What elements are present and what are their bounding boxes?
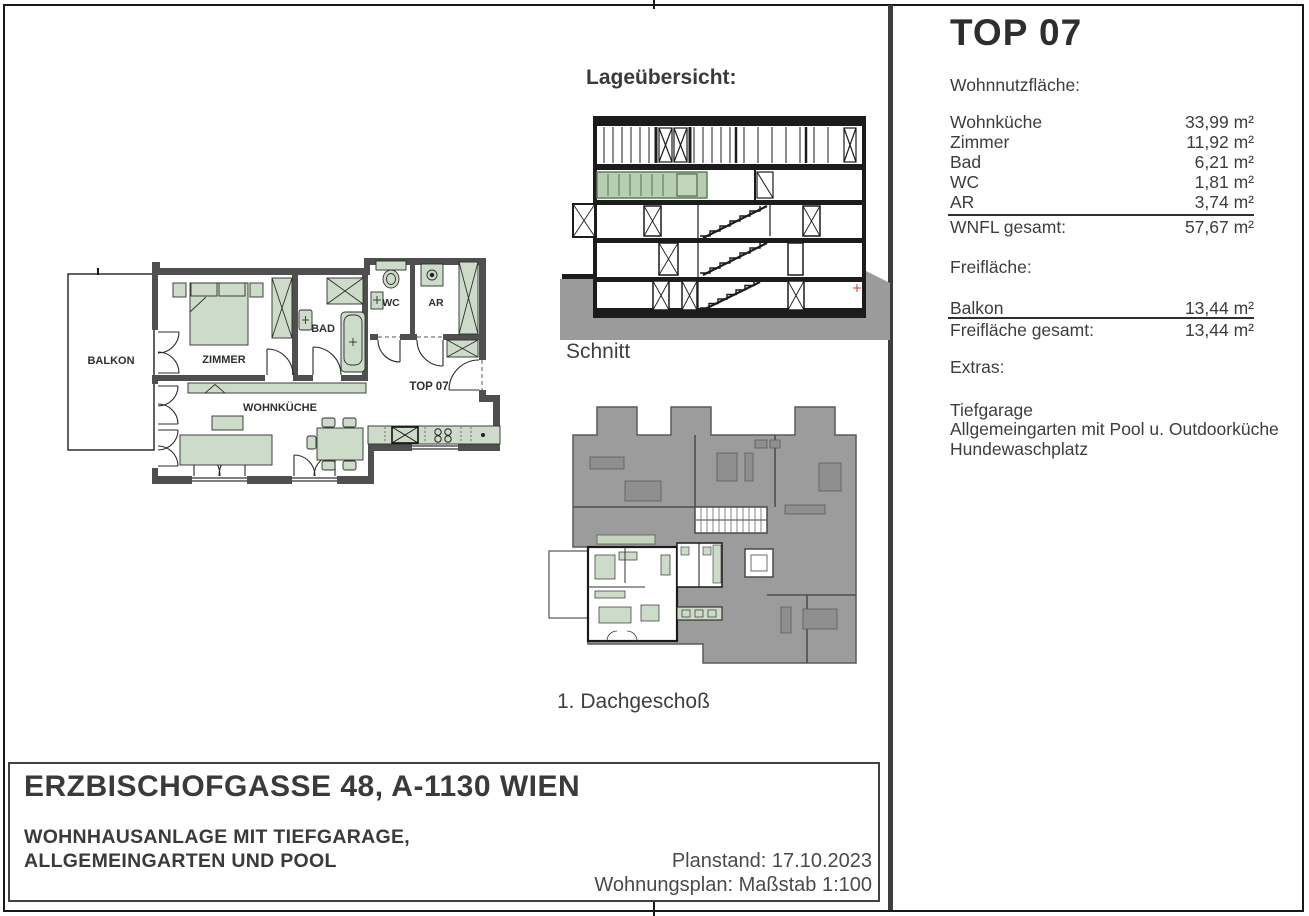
table-row: Zimmer 11,92 m² — [950, 132, 1254, 152]
elevator — [745, 549, 773, 577]
bad-label: BAD — [311, 323, 335, 335]
free-area-heading: Freifläche: — [950, 257, 1032, 278]
living-area-table: Wohnküche 33,99 m² Zimmer 11,92 m² Bad 6… — [950, 112, 1254, 212]
plan-type-scale: Wohnungsplan: Maßstab 1:100 — [594, 874, 872, 897]
balkon-label: BALKON — [87, 355, 134, 367]
bottom-center-tick — [653, 902, 655, 916]
total-label: WNFL gesamt: — [950, 217, 1066, 237]
table-row: Balkon 13,44 m² — [950, 298, 1254, 318]
wc-label: WC — [382, 297, 400, 309]
extras-item: Hundewaschplatz — [950, 440, 1279, 459]
row-value: 1,81 m² — [1195, 172, 1254, 192]
highlighted-unit — [597, 172, 707, 198]
free-area-total-rule — [948, 317, 1254, 319]
ar-label: AR — [428, 297, 444, 309]
row-value: 11,92 m² — [1186, 132, 1254, 152]
title-block: ERZBISCHOFGASSE 48, A-1130 WIEN WOHNHAUS… — [8, 762, 880, 902]
living-area-total-row: WNFL gesamt: 57,67 m² — [950, 217, 1254, 237]
row-value: 3,74 m² — [1195, 192, 1254, 212]
section-label: Schnitt — [566, 340, 630, 364]
top-center-tick — [653, 0, 655, 9]
row-label: AR — [950, 192, 974, 212]
row-label: Balkon — [950, 298, 1004, 318]
unit-kitchen — [677, 607, 722, 620]
row-label: Bad — [950, 152, 981, 172]
apartment-floor-plan-drawing: BALKON ZIMMER BAD WC AR WOHNKÜCHE TOP 07 — [55, 248, 515, 500]
plan-status: Planstand: 17.10.2023 — [672, 850, 872, 873]
total-value: 13,44 m² — [1185, 320, 1254, 340]
project-subtitle-line1: WOHNHAUSANLAGE MIT TIEFGARAGE, — [24, 826, 410, 849]
zimmer-label: ZIMMER — [202, 354, 245, 366]
living-area-heading: Wohnnutzfläche: — [950, 75, 1080, 96]
row-value: 33,99 m² — [1185, 112, 1254, 132]
row-value: 13,44 m² — [1185, 298, 1254, 318]
floor-overview-label: 1. Dachgeschoß — [557, 690, 710, 714]
project-address: ERZBISCHOFGASSE 48, A-1130 WIEN — [24, 770, 580, 804]
living-area-total-rule — [948, 214, 1254, 216]
table-row: Bad 6,21 m² — [950, 152, 1254, 172]
row-value: 6,21 m² — [1195, 152, 1254, 172]
unit-balcony — [549, 551, 588, 618]
total-value: 57,67 m² — [1185, 217, 1254, 237]
building-section-drawing — [560, 100, 890, 340]
wohnkueche-label: WOHNKÜCHE — [243, 401, 317, 414]
row-label: Zimmer — [950, 132, 1009, 152]
extras-list: Tiefgarage Allgemeingarten mit Pool u. O… — [950, 401, 1279, 459]
table-row: AR 3,74 m² — [950, 192, 1254, 212]
extras-heading: Extras: — [950, 357, 1004, 378]
plan-sheet: BALKON ZIMMER BAD WC AR WOHNKÜCHE TOP 07… — [0, 0, 1309, 916]
overview-heading: Lageübersicht: — [586, 66, 737, 90]
extras-item: Allgemeingarten mit Pool u. Outdoorküche — [950, 420, 1279, 439]
floor-overview-drawing — [545, 395, 875, 680]
unit-title: TOP 07 — [950, 12, 1082, 54]
row-label: Wohnküche — [950, 112, 1042, 132]
free-area-table: Balkon 13,44 m² — [950, 298, 1254, 318]
free-area-total-row: Freifläche gesamt: 13,44 m² — [950, 320, 1254, 340]
table-row: WC 1,81 m² — [950, 172, 1254, 192]
total-label: Freifläche gesamt: — [950, 320, 1094, 340]
extras-item: Tiefgarage — [950, 401, 1279, 420]
project-subtitle-line2: ALLGEMEINGARTEN UND POOL — [24, 850, 337, 873]
top07-plan-label: TOP 07 — [409, 381, 448, 393]
table-row: Wohnküche 33,99 m² — [950, 112, 1254, 132]
row-label: WC — [950, 172, 979, 192]
